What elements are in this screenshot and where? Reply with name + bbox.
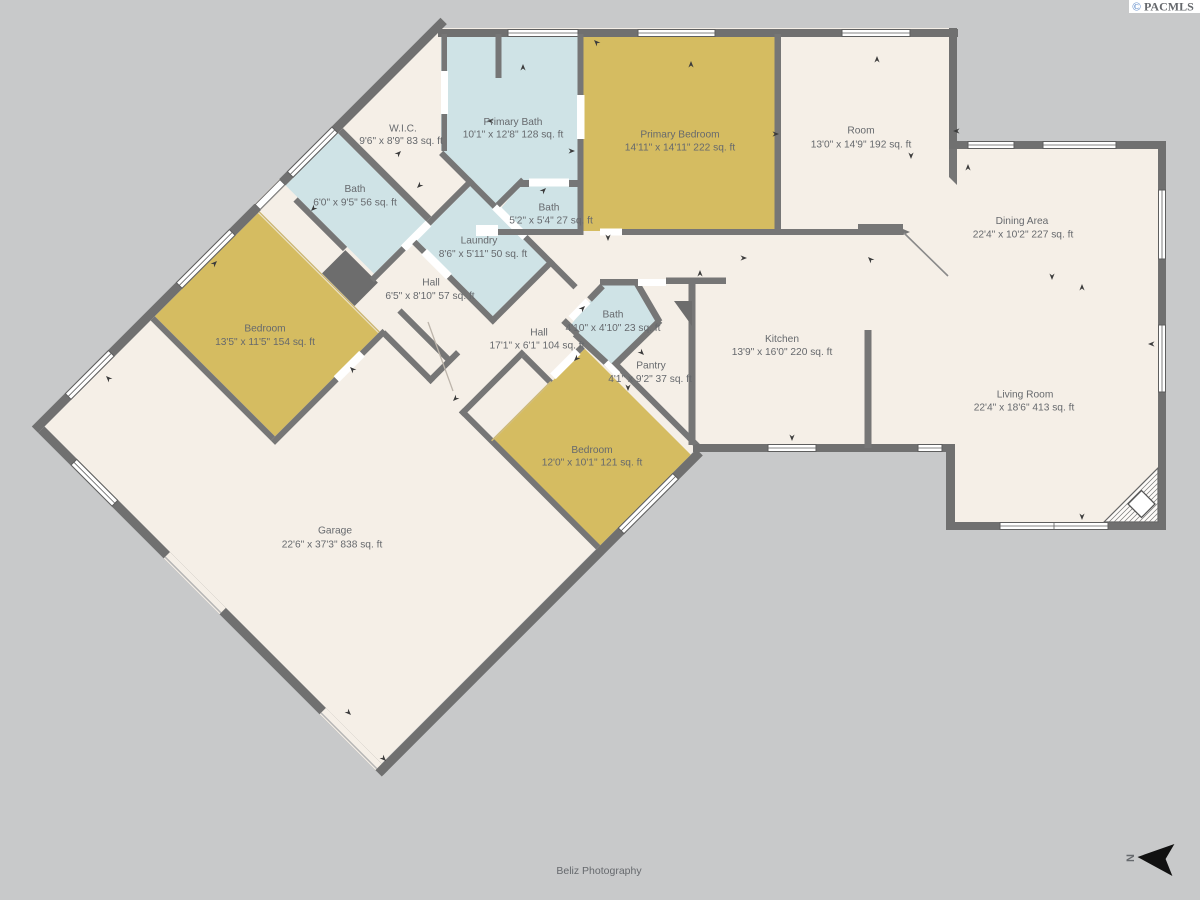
svg-text:5'2" x 5'4" 27 sq. ft: 5'2" x 5'4" 27 sq. ft [509, 216, 593, 227]
svg-text:4'10" x 4'10" 23 sq. ft: 4'10" x 4'10" 23 sq. ft [566, 323, 661, 334]
svg-text:Primary Bath: Primary Bath [484, 117, 543, 128]
svg-text:14'11" x 14'11" 222 sq. ft: 14'11" x 14'11" 222 sq. ft [625, 143, 736, 154]
svg-text:12'0" x 10'1" 121 sq. ft: 12'0" x 10'1" 121 sq. ft [542, 458, 643, 469]
svg-text:Room: Room [847, 126, 874, 137]
svg-text:Beliz Photography: Beliz Photography [556, 865, 642, 877]
svg-text:9'6" x 8'9" 83 sq. ft: 9'6" x 8'9" 83 sq. ft [359, 136, 443, 147]
svg-text:22'4" x 10'2" 227 sq. ft: 22'4" x 10'2" 227 sq. ft [973, 230, 1074, 241]
svg-text:13'0" x 14'9" 192 sq. ft: 13'0" x 14'9" 192 sq. ft [811, 140, 912, 151]
svg-text:Kitchen: Kitchen [765, 334, 799, 345]
svg-text:Dining Area: Dining Area [996, 216, 1049, 227]
svg-text:22'4" x 18'6" 413 sq. ft: 22'4" x 18'6" 413 sq. ft [974, 402, 1075, 413]
svg-text:Laundry: Laundry [461, 236, 499, 247]
svg-text:© PACMLS: © PACMLS [1132, 0, 1194, 14]
svg-text:13'5" x 11'5" 154 sq. ft: 13'5" x 11'5" 154 sq. ft [215, 337, 315, 348]
svg-text:6'5" x 8'10" 57 sq. ft: 6'5" x 8'10" 57 sq. ft [385, 291, 474, 302]
svg-text:Bedroom: Bedroom [244, 323, 285, 334]
svg-text:22'6" x 37'3" 838 sq. ft: 22'6" x 37'3" 838 sq. ft [282, 539, 383, 550]
svg-text:W.I.C.: W.I.C. [389, 124, 417, 135]
svg-text:Bedroom: Bedroom [571, 445, 612, 456]
svg-text:6'0" x 9'5" 56 sq. ft: 6'0" x 9'5" 56 sq. ft [313, 198, 397, 209]
svg-text:8'6" x 5'11" 50 sq. ft: 8'6" x 5'11" 50 sq. ft [439, 249, 528, 260]
svg-text:4'1" x 9'2" 37 sq. ft: 4'1" x 9'2" 37 sq. ft [608, 374, 692, 385]
svg-text:10'1" x 12'8" 128 sq. ft: 10'1" x 12'8" 128 sq. ft [463, 129, 564, 140]
svg-text:N: N [1125, 854, 1137, 862]
svg-text:17'1" x 6'1" 104 sq. ft: 17'1" x 6'1" 104 sq. ft [490, 341, 585, 352]
svg-text:Garage: Garage [318, 526, 352, 537]
svg-text:Hall: Hall [422, 278, 440, 289]
svg-text:13'9" x 16'0" 220 sq. ft: 13'9" x 16'0" 220 sq. ft [732, 347, 833, 358]
svg-text:Bath: Bath [603, 310, 624, 321]
svg-text:Living Room: Living Room [997, 389, 1054, 400]
svg-text:Primary Bedroom: Primary Bedroom [640, 129, 719, 140]
svg-text:Hall: Hall [530, 328, 548, 339]
svg-text:Bath: Bath [345, 184, 366, 195]
svg-text:Pantry: Pantry [636, 360, 666, 371]
svg-text:Bath: Bath [539, 203, 560, 214]
